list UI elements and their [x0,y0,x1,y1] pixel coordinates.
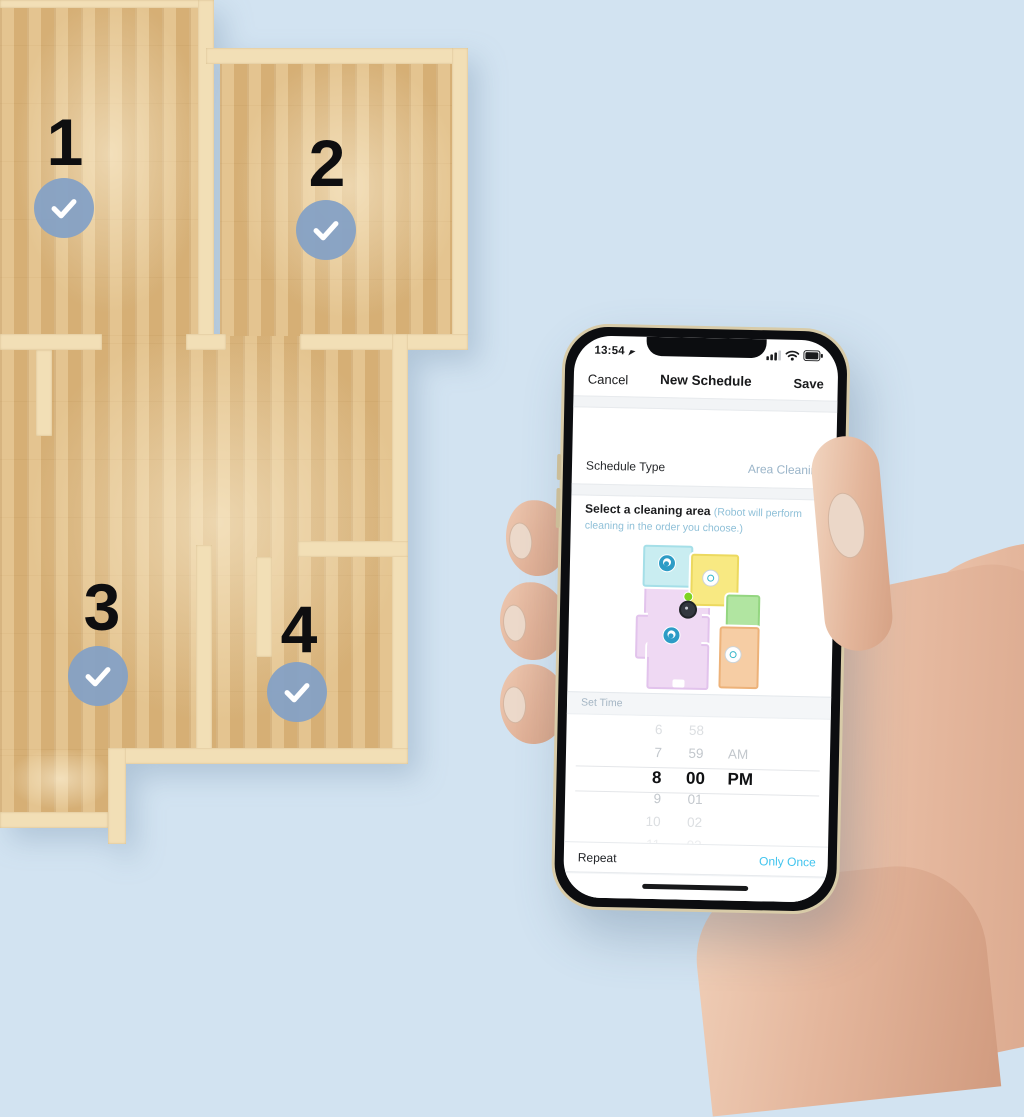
fingernail [508,522,534,561]
wall-segment [206,48,468,64]
wall-segment [300,334,468,350]
wall-segment [108,748,126,844]
repeat-label: Repeat [578,850,617,865]
phone-screen: 13:54 Cancel New Schedule Save Schedule … [563,335,839,902]
schedule-type-row[interactable]: Schedule Type Area Cleaning [572,449,837,489]
scene: { "background_color": "#d2e3f1", "floor_… [0,0,1024,1024]
set-time-label: Set Time [581,696,623,709]
status-time: 13:54 [594,345,637,358]
area-3-check-badge [68,646,128,706]
wall-segment [452,48,468,350]
picker-hour[interactable]: 7 [606,744,662,760]
checkmark-icon [309,213,343,247]
picker-hour-selected[interactable]: 8 [605,767,661,788]
wall-segment [298,541,408,557]
checkmark-icon [280,675,314,709]
area-4-check-badge [267,662,327,722]
picker-hour[interactable]: 9 [605,790,661,806]
map-room-pink-notch [672,679,684,687]
volume-up-button [557,454,562,480]
area-3-number: 3 [84,569,119,645]
wall-segment [0,334,102,350]
wall-segment [36,350,52,436]
volume-down-button [556,488,561,528]
select-area-text: Select a cleaning area (Robot will perfo… [585,502,826,539]
fingernail [502,686,528,725]
area-2-number: 2 [309,125,344,201]
wall-segment [186,334,226,350]
area-4-number: 4 [281,591,316,667]
room-1-floor [0,6,200,336]
phone-notch [646,337,766,359]
screen-chin [563,873,827,903]
battery-icon [803,350,823,361]
status-icons [766,349,823,361]
wall-segment [196,545,212,760]
time-picker[interactable]: 5 57 6 58 7 59 AM 8 00 PM 9 01 [564,713,831,847]
nav-bar: Cancel New Schedule Save [574,365,839,399]
picker-minute[interactable]: 01 [673,791,717,807]
save-button[interactable]: Save [793,376,824,392]
picker-hour[interactable]: 10 [604,813,660,829]
cleaning-map [626,540,775,693]
floor-extension [0,750,110,814]
select-area-label: Select a cleaning area [585,502,711,519]
smartphone: 13:54 Cancel New Schedule Save Schedule … [551,323,851,915]
picker-hour[interactable]: 6 [606,721,662,737]
picker-minute[interactable]: 59 [674,745,718,761]
picker-period[interactable]: AM [728,747,778,763]
schedule-type-label: Schedule Type [586,459,665,475]
area-1-number: 1 [47,104,82,180]
fingernail [502,604,528,643]
wifi-icon [785,350,799,361]
thumbnail [823,490,869,561]
picker-minute[interactable]: 58 [674,722,718,738]
checkmark-icon [47,191,81,225]
signal-icon [766,349,781,360]
wall-segment [256,557,272,657]
area-1-check-badge [34,178,94,238]
floor-plan: 1 2 3 4 [0,0,470,860]
picker-period-selected[interactable]: PM [727,770,777,791]
wall-segment [108,748,408,764]
location-arrow-icon [628,347,637,356]
repeat-value[interactable]: Only Once [759,854,816,869]
picker-minute[interactable]: 02 [672,814,716,830]
area-2-check-badge [296,200,356,260]
wall-segment [0,812,108,828]
checkmark-icon [81,659,115,693]
wall-segment [0,0,212,8]
picker-minute-selected[interactable]: 00 [673,768,717,789]
clock-text: 13:54 [594,345,625,358]
home-indicator[interactable] [642,884,748,891]
